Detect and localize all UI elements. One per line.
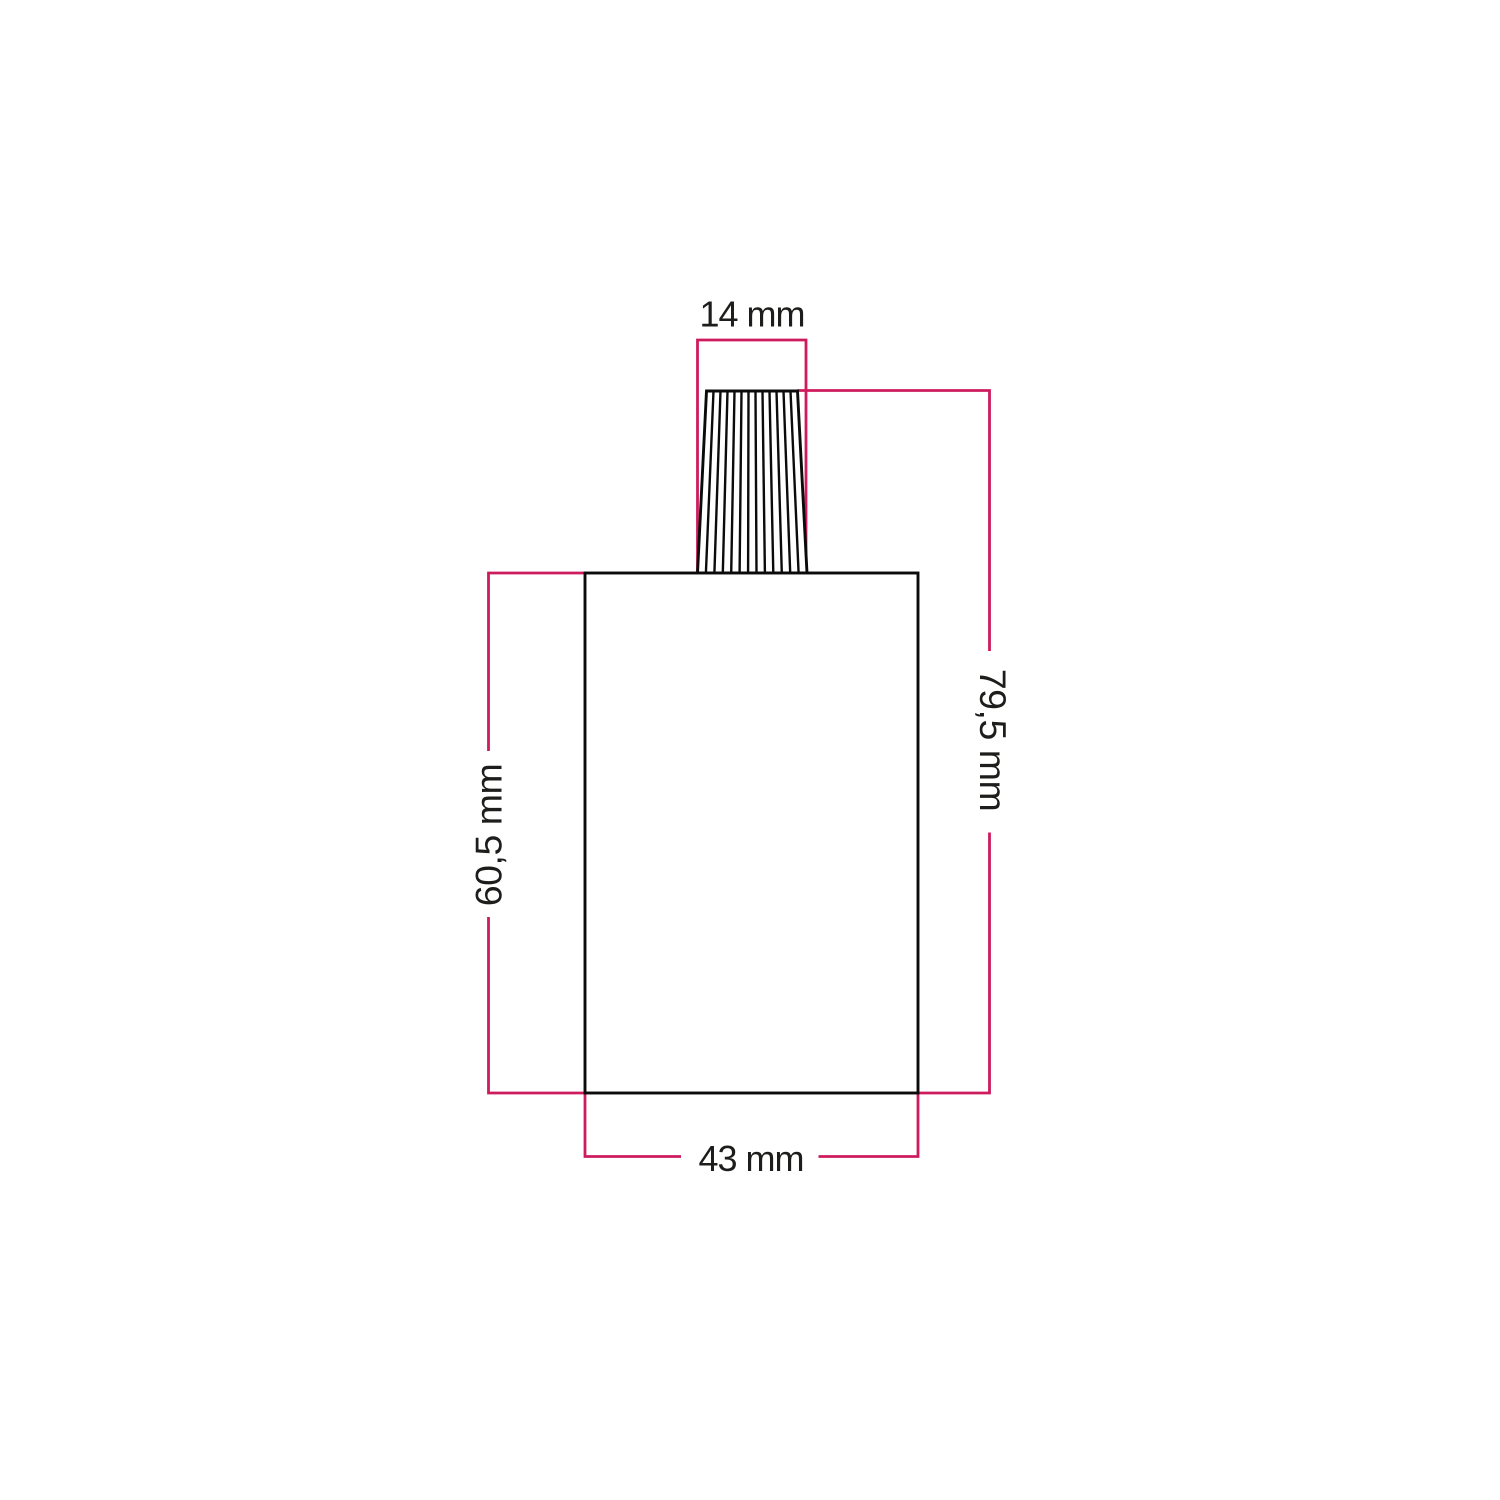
svg-text:79,5 mm: 79,5 mm — [972, 669, 1014, 811]
svg-text:14 mm: 14 mm — [699, 294, 804, 335]
svg-text:60,5 mm: 60,5 mm — [468, 764, 510, 906]
svg-text:43 mm: 43 mm — [698, 1138, 803, 1179]
